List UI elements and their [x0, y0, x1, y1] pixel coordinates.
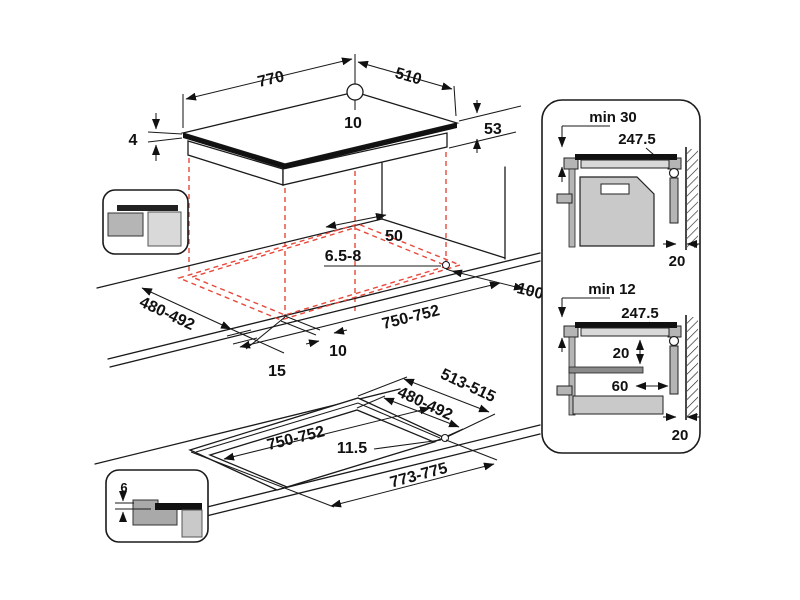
- flush-mount-pictogram: 6: [106, 470, 208, 542]
- hob-depth-label: 510: [393, 65, 423, 89]
- worktop-front-edge: [108, 253, 540, 359]
- wall-hatch-top: [687, 149, 698, 248]
- front-clearance-label: 15: [268, 363, 286, 380]
- center-distance-bottom-label: 247.5: [621, 305, 659, 322]
- shelf-section: [569, 367, 643, 373]
- wall-gap-bottom-label: 20: [672, 427, 689, 444]
- min-thickness-bottom-label: min 12: [588, 281, 636, 298]
- step-width-label: 773-775: [388, 460, 449, 492]
- cabinet-panel-icon: [182, 510, 202, 537]
- shelf-wall-gap-label: 60: [612, 378, 629, 395]
- hob-body-section-top: [581, 160, 669, 168]
- recess-height-label: 6: [120, 480, 127, 495]
- flush-depth-label: 480-492: [395, 384, 455, 424]
- hob-isometric-view: 770 510 10 4 53: [129, 54, 521, 317]
- hob-body-icon: [108, 213, 143, 236]
- back-clearance-label: 50: [385, 228, 403, 245]
- wall-spacer-top: [670, 178, 678, 223]
- flush-glass-icon: [155, 503, 202, 510]
- hob-footprint-dashed: [179, 224, 460, 320]
- cabinet-icon: [148, 212, 181, 246]
- diagram-canvas: 770 510 10 4 53 50: [0, 0, 800, 600]
- drawer-section: [573, 396, 663, 414]
- wall-hatch-bottom: [687, 317, 698, 418]
- wall-spacer-bottom: [670, 346, 678, 394]
- oven-vent-slot: [601, 184, 629, 194]
- center-distance-top-label: 247.5: [618, 131, 656, 148]
- cutout-corner-radius-mark: [443, 262, 450, 269]
- hob-glass-section-top: [575, 154, 677, 160]
- center-mark-circle: [347, 84, 363, 100]
- min-thickness-top-label: min 30: [589, 109, 637, 126]
- center-point-bottom: [670, 337, 679, 346]
- cabinet-rail-bottom: [557, 386, 572, 395]
- hob-width-label: 770: [256, 68, 286, 91]
- surface-mount-pictogram: [103, 190, 188, 254]
- side-clearance-panel: min 30 247.5 20 min 12: [542, 100, 700, 453]
- center-mark-label: 10: [344, 115, 362, 132]
- corner-radius-label: 6.5-8: [325, 248, 362, 265]
- cabinet-side-panel-top: [569, 169, 575, 247]
- step-offset-label: 11.5: [337, 440, 367, 457]
- hob-body-section-bottom: [581, 328, 669, 336]
- cutout-outline-dashed: [192, 228, 447, 315]
- step-depth-label: 513-515: [438, 366, 498, 406]
- installation-diagram: 770 510 10 4 53 50: [0, 0, 800, 600]
- hob-shelf-gap-label: 20: [613, 345, 630, 362]
- cutout-width-label: 750-752: [380, 302, 441, 333]
- worktop-surface-icon: [117, 205, 178, 211]
- side-clearance-label: 100: [515, 280, 545, 303]
- center-point-top: [670, 169, 679, 178]
- hob-height-label: 53: [484, 121, 502, 138]
- cabinet-rail-top: [557, 194, 572, 203]
- glass-thickness-label: 4: [129, 132, 138, 149]
- wall-gap-top-label: 20: [669, 253, 686, 270]
- hob-glass-section-bottom: [575, 322, 677, 328]
- front-inset-label: 10: [329, 343, 347, 360]
